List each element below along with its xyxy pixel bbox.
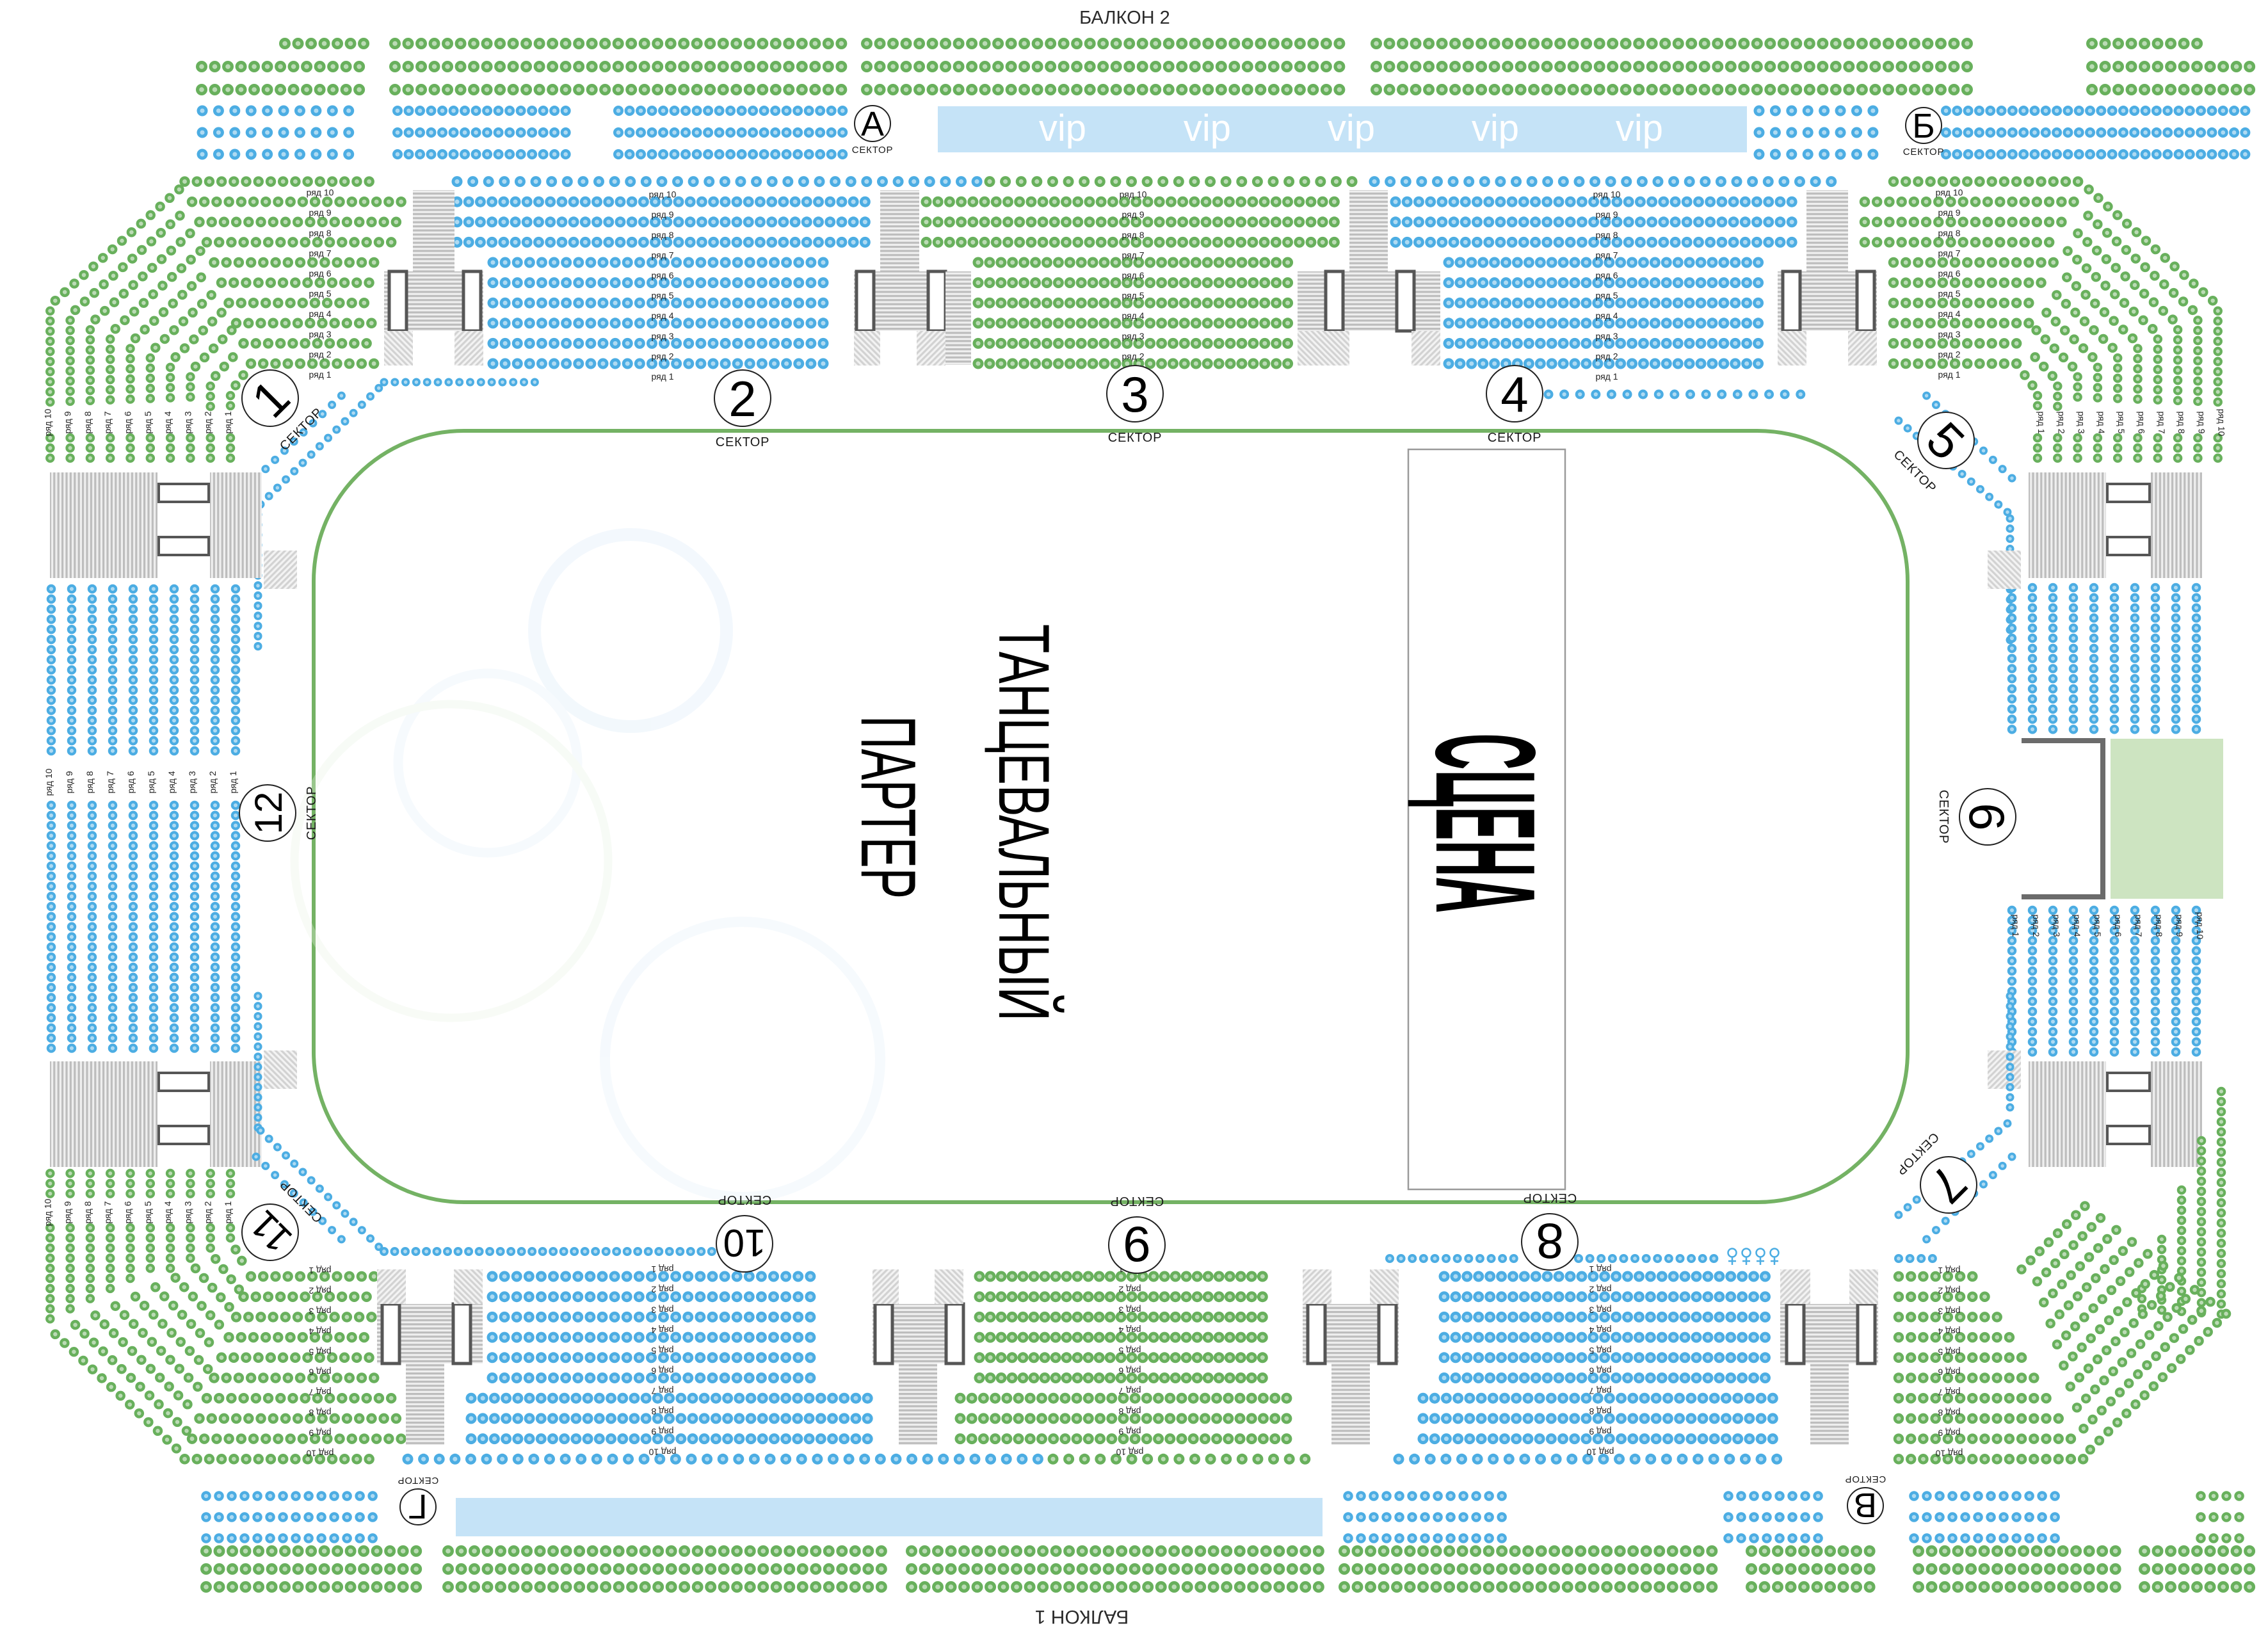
svg-text:ряд 8: ряд 8	[309, 228, 331, 238]
svg-text:ряд 8: ряд 8	[309, 1408, 331, 1418]
svg-text:ряд 5: ряд 5	[2116, 411, 2127, 433]
svg-text:ряд 4: ряд 4	[1118, 1325, 1141, 1335]
svg-text:БАЛКОН 2: БАЛКОН 2	[1079, 8, 1170, 28]
svg-text:vip: vip	[1328, 108, 1375, 149]
svg-text:СЕКТОР: СЕКТОР	[305, 786, 319, 840]
svg-text:ряд 1: ряд 1	[228, 771, 238, 793]
svg-text:ряд 4: ряд 4	[651, 310, 673, 321]
svg-text:СЕКТОР: СЕКТОР	[1936, 790, 1950, 844]
svg-text:4: 4	[1500, 366, 1528, 422]
svg-text:ряд 1: ряд 1	[223, 1201, 233, 1223]
svg-text:ряд 6: ряд 6	[2113, 914, 2123, 937]
svg-text:2: 2	[728, 371, 756, 427]
svg-text:ряд 9: ряд 9	[2175, 914, 2185, 937]
svg-text:ряд 4: ряд 4	[309, 309, 331, 319]
svg-text:ряд 10: ряд 10	[1935, 1448, 1963, 1458]
svg-text:ряд 1: ряд 1	[651, 1264, 673, 1275]
svg-text:ряд 3: ряд 3	[1595, 331, 1618, 341]
svg-text:ряд 3: ряд 3	[1938, 329, 1960, 339]
svg-text:ряд 6: ряд 6	[2137, 411, 2147, 433]
svg-text:ряд 2: ряд 2	[1595, 351, 1618, 361]
svg-text:СЕКТОР: СЕКТОР	[718, 1193, 771, 1207]
svg-text:ряд 5: ряд 5	[651, 1346, 673, 1356]
svg-text:ряд 2: ряд 2	[203, 1201, 213, 1223]
svg-text:ряд 10: ряд 10	[44, 768, 54, 796]
svg-text:Г: Г	[408, 1487, 427, 1525]
svg-text:ряд 2: ряд 2	[1122, 351, 1144, 361]
svg-text:ряд 1: ряд 1	[223, 411, 233, 433]
svg-text:ряд 1: ряд 1	[651, 371, 673, 382]
svg-text:ряд 6: ряд 6	[1938, 268, 1960, 278]
svg-text:ряд 3: ряд 3	[182, 411, 193, 433]
svg-text:ряд 7: ряд 7	[1118, 1386, 1141, 1396]
svg-text:ряд 7: ряд 7	[309, 248, 331, 258]
svg-text:ряд 5: ряд 5	[651, 291, 673, 301]
svg-text:ряд 2: ряд 2	[203, 411, 213, 433]
svg-text:ряд 5: ряд 5	[1118, 1346, 1141, 1356]
svg-text:ряд 9: ряд 9	[2196, 411, 2207, 433]
svg-text:ряд 9: ряд 9	[63, 411, 73, 433]
svg-text:ряд 3: ряд 3	[309, 1306, 331, 1316]
svg-text:ряд 8: ряд 8	[1589, 1406, 1611, 1417]
svg-text:ряд 6: ряд 6	[123, 411, 133, 433]
svg-text:ряд 1: ряд 1	[1938, 369, 1960, 380]
svg-text:ряд 3: ряд 3	[1122, 331, 1144, 341]
svg-text:6: 6	[1959, 803, 2015, 830]
svg-text:vip: vip	[1039, 108, 1086, 149]
svg-text:ряд 6: ряд 6	[651, 270, 673, 280]
svg-text:ряд 3: ряд 3	[187, 771, 197, 793]
svg-text:ряд 10: ряд 10	[2195, 912, 2205, 940]
svg-text:ряд 2: ряд 2	[2031, 914, 2041, 937]
svg-text:СЕКТОР: СЕКТОР	[1110, 1194, 1164, 1208]
svg-text:9: 9	[1123, 1216, 1150, 1273]
svg-text:ряд 7: ряд 7	[102, 411, 113, 433]
svg-text:ряд 4: ряд 4	[1938, 1326, 1960, 1337]
svg-text:ряд 8: ряд 8	[651, 1406, 673, 1417]
svg-text:ряд 10: ряд 10	[307, 188, 334, 198]
svg-text:ряд 9: ряд 9	[63, 1201, 73, 1223]
svg-text:ряд 3: ряд 3	[2077, 411, 2087, 433]
svg-text:ряд 3: ряд 3	[309, 329, 331, 339]
svg-text:vip: vip	[1472, 108, 1519, 149]
svg-text:12: 12	[247, 792, 290, 835]
svg-text:ряд 2: ряд 2	[207, 771, 218, 793]
svg-text:ряд 4: ряд 4	[163, 411, 173, 433]
svg-text:ряд 1: ряд 1	[2036, 411, 2047, 433]
svg-text:ряд 7: ряд 7	[102, 1201, 113, 1223]
svg-text:ряд 10: ряд 10	[648, 1447, 676, 1457]
svg-text:СЕКТОР: СЕКТОР	[716, 435, 769, 449]
svg-text:ряд 8: ряд 8	[1118, 1406, 1141, 1417]
svg-text:ряд 4: ряд 4	[1122, 310, 1144, 321]
svg-text:8: 8	[1536, 1213, 1563, 1269]
svg-text:ряд 10: ряд 10	[1116, 1447, 1143, 1457]
svg-text:ряд 3: ряд 3	[1118, 1305, 1141, 1315]
svg-text:ряд 6: ряд 6	[651, 1366, 673, 1376]
svg-text:ряд 2: ряд 2	[1118, 1285, 1141, 1295]
svg-text:ряд 7: ряд 7	[1589, 1386, 1611, 1396]
svg-text:ряд 6: ряд 6	[1118, 1366, 1141, 1376]
svg-text:ряд 2: ряд 2	[651, 1285, 673, 1295]
svg-text:ряд 7: ряд 7	[1595, 250, 1618, 260]
svg-text:ряд 7: ряд 7	[1938, 248, 1960, 258]
svg-text:ряд 5: ряд 5	[1122, 291, 1144, 301]
svg-text:ряд 7: ряд 7	[1122, 250, 1144, 260]
svg-text:ряд 8: ряд 8	[651, 230, 673, 240]
svg-text:ряд 8: ряд 8	[1938, 1408, 1960, 1418]
svg-text:ряд 4: ряд 4	[2072, 914, 2082, 937]
svg-text:ряд 6: ряд 6	[123, 1201, 133, 1223]
svg-text:3: 3	[1121, 366, 1148, 422]
svg-text:ряд 3: ряд 3	[651, 331, 673, 341]
svg-text:СЕКТОР: СЕКТОР	[1845, 1474, 1886, 1484]
svg-text:ряд 7: ряд 7	[651, 250, 673, 260]
svg-text:ряд 6: ряд 6	[1595, 270, 1618, 280]
svg-text:ряд 10: ряд 10	[42, 1198, 52, 1226]
svg-text:ряд 7: ряд 7	[309, 1387, 331, 1397]
svg-text:ряд 6: ряд 6	[309, 1367, 331, 1378]
svg-text:ряд 8: ряд 8	[83, 1201, 93, 1223]
svg-text:ряд 8: ряд 8	[84, 771, 95, 793]
svg-text:ряд 6: ряд 6	[1122, 270, 1144, 280]
svg-text:ряд 8: ряд 8	[1938, 228, 1960, 238]
svg-text:vip: vip	[1184, 108, 1231, 149]
svg-text:ряд 4: ряд 4	[1589, 1325, 1611, 1335]
svg-text:В: В	[1854, 1486, 1877, 1524]
svg-text:ряд 2: ряд 2	[1938, 349, 1960, 359]
svg-text:ряд 4: ряд 4	[1595, 310, 1618, 321]
svg-text:ряд 9: ряд 9	[1589, 1427, 1611, 1437]
svg-text:ряд 7: ряд 7	[1938, 1387, 1960, 1397]
svg-text:ряд 5: ряд 5	[146, 771, 156, 793]
svg-text:ряд 5: ряд 5	[309, 1347, 331, 1357]
svg-text:ряд 2: ряд 2	[309, 349, 331, 359]
svg-text:ряд 4: ряд 4	[309, 1326, 331, 1337]
svg-text:ряд 2: ряд 2	[2056, 411, 2066, 433]
svg-text:ряд 7: ряд 7	[2157, 411, 2167, 433]
svg-text:ряд 9: ряд 9	[651, 1427, 673, 1437]
svg-text:ряд 1: ряд 1	[309, 369, 331, 380]
svg-text:ряд 1: ряд 1	[2011, 914, 2021, 937]
svg-text:ряд 1: ряд 1	[1595, 371, 1618, 382]
svg-text:СЕКТОР: СЕКТОР	[1488, 431, 1541, 445]
svg-text:ряд 9: ряд 9	[1122, 209, 1144, 220]
svg-text:ряд 10: ряд 10	[1593, 189, 1621, 200]
svg-text:ряд 5: ряд 5	[1595, 291, 1618, 301]
svg-text:vip: vip	[1616, 108, 1663, 149]
svg-text:ряд 9: ряд 9	[64, 771, 74, 793]
svg-text:А: А	[861, 105, 884, 143]
svg-text:ряд 9: ряд 9	[1595, 209, 1618, 220]
svg-text:10: 10	[723, 1221, 766, 1264]
svg-text:ряд 9: ряд 9	[1118, 1427, 1141, 1437]
svg-text:ряд 5: ряд 5	[143, 1201, 153, 1223]
svg-text:ряд 3: ряд 3	[2052, 914, 2062, 937]
svg-text:ряд 4: ряд 4	[651, 1325, 673, 1335]
svg-text:ряд 5: ряд 5	[2093, 914, 2103, 937]
svg-text:ТАНЦЕВАЛЬНЫЙ: ТАНЦЕВАЛЬНЫЙ	[984, 624, 1064, 1021]
svg-text:ряд 1: ряд 1	[1938, 1266, 1960, 1276]
svg-text:ряд 8: ряд 8	[83, 411, 93, 433]
svg-text:СЕКТОР: СЕКТОР	[852, 145, 894, 156]
svg-text:Б: Б	[1912, 107, 1934, 145]
svg-text:ПАРТЕР: ПАРТЕР	[845, 716, 932, 899]
svg-text:ряд 7: ряд 7	[2134, 914, 2144, 937]
svg-text:ряд 3: ряд 3	[1589, 1305, 1611, 1315]
svg-text:ряд 10: ряд 10	[2217, 409, 2227, 437]
svg-text:ряд 9: ряд 9	[1938, 207, 1960, 218]
svg-text:ряд 2: ряд 2	[1589, 1285, 1611, 1295]
svg-text:ряд 2: ряд 2	[309, 1286, 331, 1296]
svg-text:ряд 5: ряд 5	[1589, 1346, 1611, 1356]
svg-text:ряд 10: ряд 10	[42, 408, 52, 436]
svg-text:ряд 9: ряд 9	[309, 1428, 331, 1438]
svg-text:ряд 3: ряд 3	[1938, 1306, 1960, 1316]
svg-text:ряд 10: ряд 10	[1586, 1447, 1614, 1457]
svg-text:ряд 10: ряд 10	[649, 189, 677, 200]
svg-text:СЕКТОР: СЕКТОР	[1523, 1191, 1577, 1205]
svg-text:ряд 1: ряд 1	[1589, 1264, 1611, 1275]
svg-text:ряд 5: ряд 5	[309, 289, 331, 299]
svg-text:ряд 8: ряд 8	[2176, 411, 2187, 433]
svg-text:ряд 10: ряд 10	[306, 1448, 334, 1458]
svg-text:ряд 4: ряд 4	[166, 771, 177, 793]
svg-text:ряд 3: ряд 3	[182, 1201, 193, 1223]
svg-text:ряд 4: ряд 4	[163, 1201, 173, 1223]
svg-text:ряд 8: ряд 8	[1595, 230, 1618, 240]
svg-text:ряд 8: ряд 8	[2154, 914, 2164, 937]
svg-text:СЦЕНА: СЦЕНА	[1406, 734, 1564, 913]
svg-text:СЕКТОР: СЕКТОР	[1903, 147, 1945, 157]
svg-text:СЕКТОР: СЕКТОР	[398, 1475, 439, 1486]
svg-text:ряд 6: ряд 6	[1938, 1367, 1960, 1378]
svg-text:ряд 4: ряд 4	[1938, 309, 1960, 319]
svg-text:ряд 2: ряд 2	[1938, 1286, 1960, 1296]
svg-text:ряд 7: ряд 7	[651, 1386, 673, 1396]
svg-text:ряд 10: ряд 10	[1936, 188, 1963, 198]
svg-text:БАЛКОН 1: БАЛКОН 1	[1035, 1606, 1129, 1627]
svg-text:ряд 6: ряд 6	[1589, 1366, 1611, 1376]
svg-text:ряд 2: ряд 2	[651, 351, 673, 361]
svg-text:ряд 8: ряд 8	[1122, 230, 1144, 240]
svg-text:ряд 10: ряд 10	[1120, 189, 1147, 200]
svg-text:ряд 9: ряд 9	[651, 209, 673, 220]
svg-text:ряд 9: ряд 9	[1938, 1428, 1960, 1438]
svg-text:ряд 1: ряд 1	[309, 1266, 331, 1276]
svg-text:ряд 3: ряд 3	[651, 1305, 673, 1315]
svg-text:ряд 5: ряд 5	[143, 411, 153, 433]
svg-text:ряд 6: ряд 6	[125, 771, 136, 793]
svg-text:ряд 9: ряд 9	[309, 207, 331, 218]
svg-text:ряд 5: ряд 5	[1938, 1347, 1960, 1357]
svg-text:ряд 6: ряд 6	[309, 268, 331, 278]
svg-text:ряд 7: ряд 7	[105, 771, 115, 793]
svg-text:СЕКТОР: СЕКТОР	[1108, 431, 1162, 445]
svg-text:ряд 4: ряд 4	[2096, 411, 2107, 433]
svg-text:ряд 5: ряд 5	[1938, 289, 1960, 299]
